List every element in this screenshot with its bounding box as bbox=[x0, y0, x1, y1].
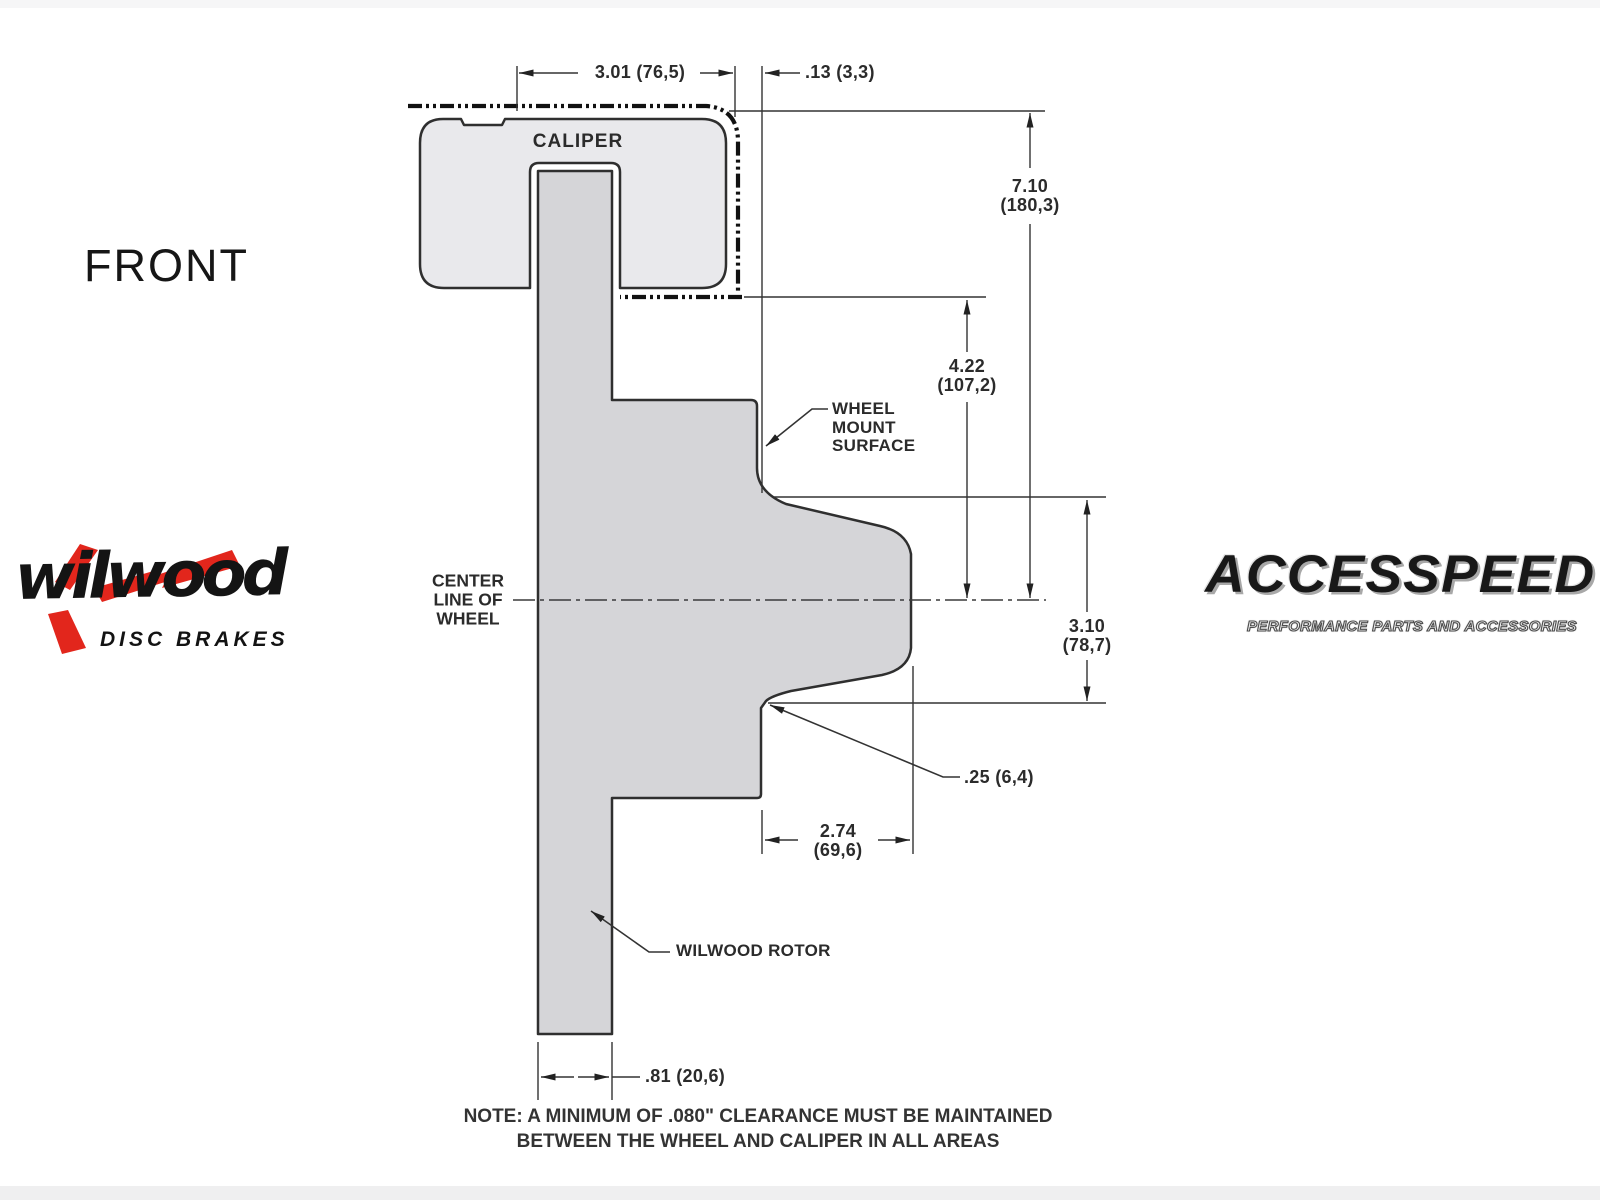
dim-rotor-thickness: .81 (20,6) bbox=[645, 1066, 725, 1086]
wheel-mount-surface-leader bbox=[766, 409, 828, 446]
accesspeed-logo: ACCESSPEED PERFORMANCE PARTS AND ACCESSO… bbox=[1205, 546, 1585, 646]
caliper-label: CALIPER bbox=[533, 132, 623, 152]
wilwood-logo: wilwood DISC BRAKES bbox=[12, 540, 324, 655]
center-line-label: CENTER LINE OF WHEEL bbox=[432, 572, 504, 629]
accesspeed-wordmark: ACCESSPEED bbox=[1205, 546, 1595, 604]
rotor-hat-shape bbox=[538, 171, 911, 1034]
dim-caliper-wheel-clearance: .13 (3,3) bbox=[805, 62, 875, 82]
dim-step-depth: .25 (6,4) bbox=[964, 767, 1034, 787]
dim-caliper-width: 3.01 (76,5) bbox=[595, 62, 685, 82]
red-descender-slash bbox=[48, 610, 86, 654]
dim-caliper-top-to-centerline: 7.10 (180,3) bbox=[1000, 177, 1059, 215]
wheel-mount-surface-label: WHEEL MOUNT SURFACE bbox=[832, 400, 915, 456]
accesspeed-tagline: PERFORMANCE PARTS AND ACCESSORIES bbox=[1247, 618, 1577, 635]
clearance-note: NOTE: A MINIMUM OF .080" CLEARANCE MUST … bbox=[464, 1104, 1053, 1154]
dim-mount-face-to-step: 3.10 (78,7) bbox=[1063, 617, 1112, 655]
drawing-page: FRONT CALIPER 3.01 (76,5) .13 (3,3) 7.10… bbox=[0, 0, 1600, 1200]
wilwood-rotor-label: WILWOOD ROTOR bbox=[676, 942, 831, 961]
step-leader bbox=[770, 705, 960, 777]
dim-hub-depth: 2.74 (69,6) bbox=[814, 822, 863, 860]
wilwood-tagline: DISC BRAKES bbox=[100, 628, 289, 652]
dim-caliper-bottom-to-centerline: 4.22 (107,2) bbox=[937, 357, 996, 395]
front-view-label: FRONT bbox=[84, 241, 249, 291]
wilwood-wordmark: wilwood bbox=[14, 541, 284, 609]
